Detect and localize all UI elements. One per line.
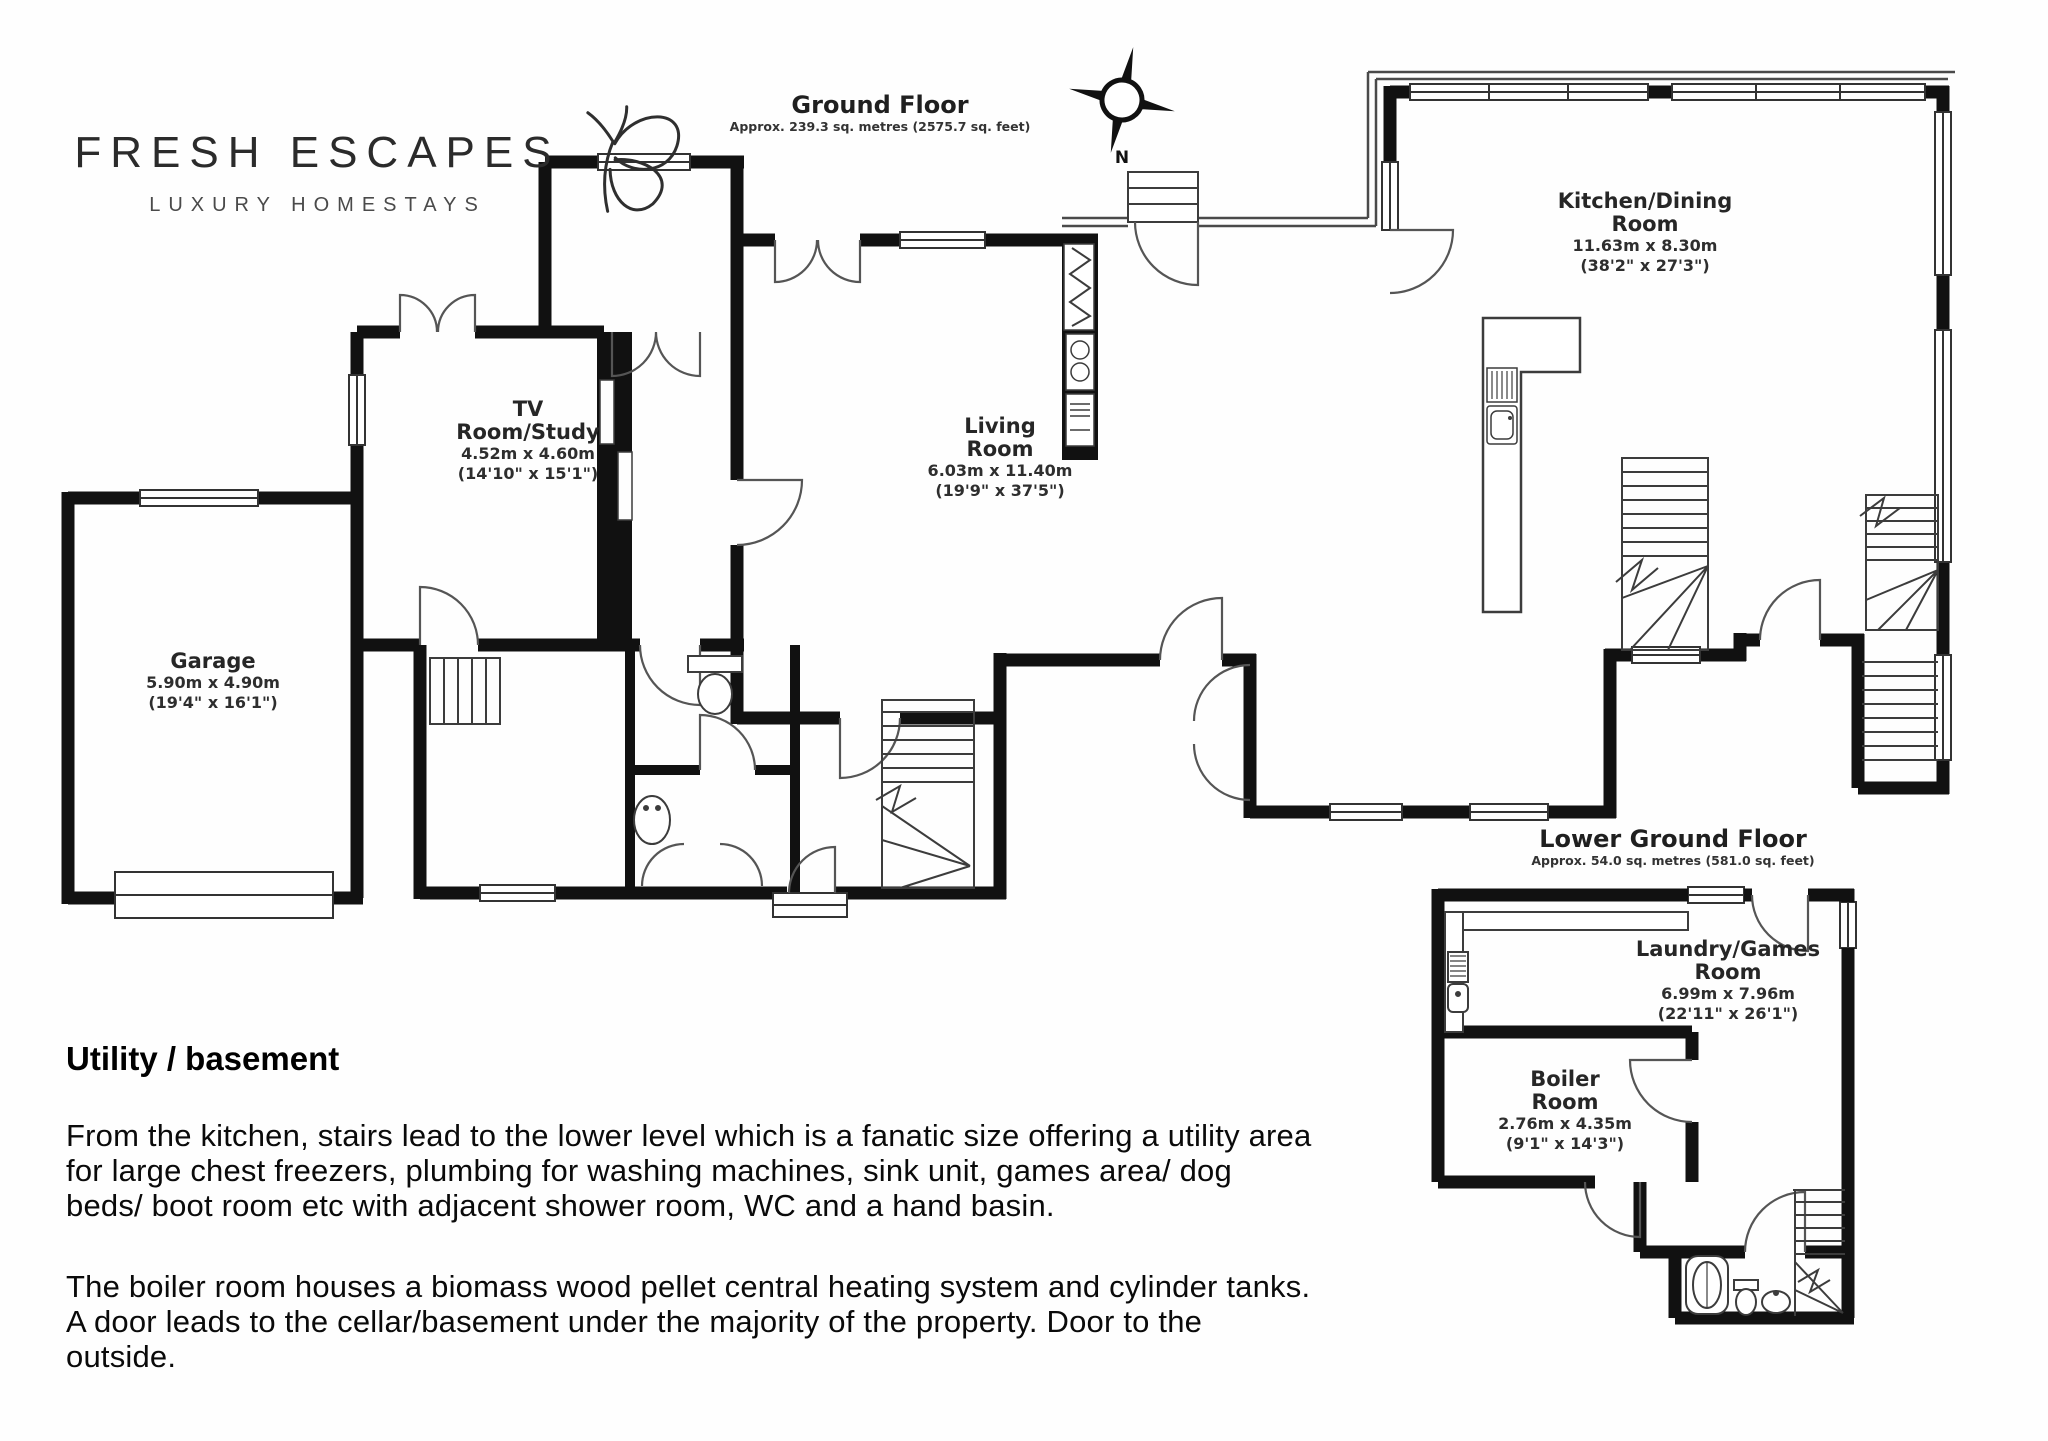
floor-area-text: Approx. 54.0 sq. metres (581.0 sq. feet) <box>1531 853 1814 869</box>
terrace-steps <box>1128 172 1198 222</box>
room-name: Room/Study <box>456 421 599 444</box>
window <box>480 885 555 901</box>
window <box>598 154 690 170</box>
room-dimensions-imperial: (9'1" x 14'3") <box>1498 1134 1632 1154</box>
ground-floor-title: Ground Floor Approx. 239.3 sq. metres (2… <box>730 92 1031 135</box>
window <box>140 490 258 506</box>
room-name: Laundry/Games <box>1636 938 1820 961</box>
description-paragraph: From the kitchen, stairs lead to the low… <box>66 1118 1316 1223</box>
room-label-laundry: Laundry/Games Room 6.99m x 7.96m (22'11"… <box>1636 938 1820 1024</box>
stairs-hall <box>876 700 974 888</box>
hand-basin <box>634 796 670 844</box>
compass-icon <box>1058 36 1186 164</box>
room-name: Garage <box>146 650 280 673</box>
stairs-lower-flight <box>1862 662 1938 760</box>
room-label-living: Living Room 6.03m x 11.40m (19'9" x 37'5… <box>928 415 1073 501</box>
room-name: Living <box>928 415 1073 438</box>
stairs-lower-ground <box>1793 1190 1845 1316</box>
shower <box>1686 1256 1728 1314</box>
brand-name: FRESH ESCAPES <box>60 128 575 178</box>
room-name: Kitchen/Dining <box>1558 190 1733 213</box>
window <box>1470 804 1548 820</box>
room-dimensions-metric: 6.99m x 7.96m <box>1636 984 1820 1004</box>
floorplan-page: FRESH ESCAPES LUXURY HOMESTAYS Ground Fl… <box>0 0 2048 1441</box>
room-dimensions-metric: 5.90m x 4.90m <box>146 673 280 693</box>
compass-north-label: N <box>1115 148 1129 168</box>
window <box>349 375 365 445</box>
lower-ground-floor-title: Lower Ground Floor Approx. 54.0 sq. metr… <box>1531 826 1814 869</box>
room-dimensions-metric: 11.63m x 8.30m <box>1558 236 1733 256</box>
window <box>1330 804 1402 820</box>
basin-lower <box>1762 1291 1790 1313</box>
room-name: Room <box>1498 1091 1632 1114</box>
floor-title-text: Ground Floor <box>730 92 1031 119</box>
room-dimensions-imperial: (19'9" x 37'5") <box>928 481 1073 501</box>
room-label-boiler: Boiler Room 2.76m x 4.35m (9'1" x 14'3") <box>1498 1068 1632 1154</box>
room-name: Room <box>1636 961 1820 984</box>
chimney-breast <box>597 332 632 645</box>
floor-area-text: Approx. 239.3 sq. metres (2575.7 sq. fee… <box>730 119 1031 135</box>
kitchen-island <box>1483 318 1580 612</box>
garage-door <box>115 872 333 918</box>
brand-logo: FRESH ESCAPES LUXURY HOMESTAYS <box>60 128 575 217</box>
room-dimensions-imperial: (38'2" x 27'3") <box>1558 256 1733 276</box>
window <box>1935 655 1951 760</box>
room-label-tv: TV Room/Study 4.52m x 4.60m (14'10" x 15… <box>456 398 599 484</box>
room-label-kitchen: Kitchen/Dining Room 11.63m x 8.30m (38'2… <box>1558 190 1733 276</box>
room-name: TV <box>456 398 599 421</box>
window <box>1840 902 1856 948</box>
room-label-garage: Garage 5.90m x 4.90m (19'4" x 16'1") <box>146 650 280 713</box>
room-dimensions-metric: 4.52m x 4.60m <box>456 444 599 464</box>
room-dimensions-metric: 6.03m x 11.40m <box>928 461 1073 481</box>
room-name: Boiler <box>1498 1068 1632 1091</box>
toilet-lower <box>1734 1280 1758 1315</box>
room-dimensions-imperial: (14'10" x 15'1") <box>456 464 599 484</box>
room-name: Room <box>1558 213 1733 236</box>
stairs-kitchen-down <box>1616 458 1708 650</box>
window <box>1935 112 1951 275</box>
stairs-kitchen-up <box>1860 495 1938 630</box>
description-heading: Utility / basement <box>66 1040 1316 1078</box>
window <box>1382 162 1398 230</box>
description-paragraph: The boiler room houses a biomass wood pe… <box>66 1269 1316 1374</box>
floor-title-text: Lower Ground Floor <box>1531 826 1814 853</box>
window <box>900 232 985 248</box>
brand-tagline: LUXURY HOMESTAYS <box>60 194 575 217</box>
room-dimensions-imperial: (22'11" x 26'1") <box>1636 1004 1820 1024</box>
room-dimensions-imperial: (19'4" x 16'1") <box>146 693 280 713</box>
window <box>1688 887 1744 903</box>
steps-to-garage <box>430 658 500 724</box>
room-dimensions-metric: 2.76m x 4.35m <box>1498 1114 1632 1134</box>
door-threshold <box>773 893 847 917</box>
description-block: Utility / basement From the kitchen, sta… <box>66 1040 1316 1420</box>
window <box>1410 84 1648 100</box>
window <box>1672 84 1925 100</box>
room-name: Room <box>928 438 1073 461</box>
